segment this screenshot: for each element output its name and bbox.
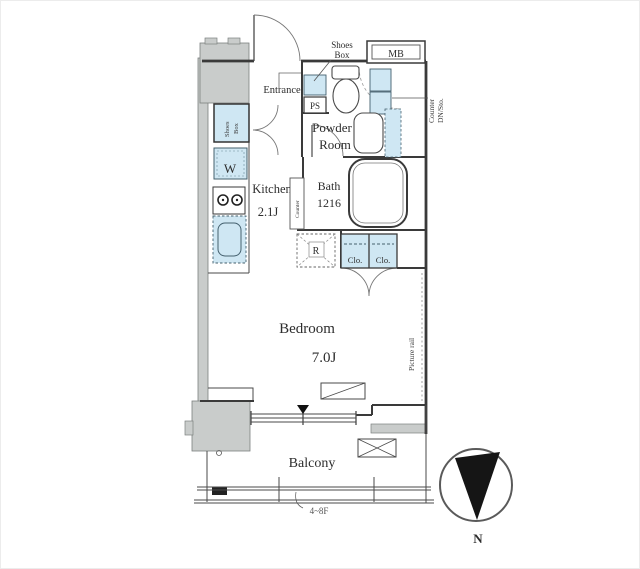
pillar-top-left — [200, 43, 249, 103]
floor-range-label: 4~8F — [310, 506, 329, 516]
closet-right-label: Clo. — [376, 255, 390, 265]
bedroom-size-label: 7.0J — [312, 350, 337, 366]
refrigerator-space: R — [297, 234, 335, 267]
washing-machine: W — [214, 148, 247, 179]
closet-left-label: Clo. — [348, 255, 362, 265]
ps-label: PS — [310, 101, 320, 111]
closet-double-doors — [341, 268, 397, 296]
balcony-label: Balcony — [289, 456, 336, 471]
toilet-tank — [332, 66, 359, 79]
pillar-tab — [205, 38, 217, 44]
toilet-bowl — [333, 79, 359, 113]
kitchen-size-label: 2.1J — [258, 205, 279, 219]
shoes-box-callout-line1: Shoes — [331, 40, 353, 50]
pillar-tab — [185, 421, 193, 435]
entrance-door — [254, 15, 300, 61]
powder-room-label-line2: Room — [319, 137, 351, 152]
mb-label: MB — [388, 49, 404, 60]
sliding-window — [251, 405, 356, 425]
compass: N — [440, 449, 512, 546]
pillar-tab — [228, 38, 240, 44]
balcony-railing-lines — [194, 487, 434, 503]
picture-rail-label: Picture rail — [407, 338, 416, 371]
cabinet-label-line2: Box — [233, 122, 240, 134]
bath-label: Bath — [318, 179, 341, 193]
washer-label: W — [224, 161, 237, 176]
pipe-space: PS — [304, 97, 326, 113]
bathroom: Counter Bath 1216 — [290, 159, 407, 229]
closets: Clo. Clo. — [341, 234, 397, 268]
door-swing-arc — [254, 15, 300, 61]
cabinet-box — [214, 104, 249, 142]
compass-north-label: N — [473, 531, 483, 546]
balcony-wall-band — [371, 424, 426, 433]
kitchen-folding-door — [253, 105, 278, 155]
kitchen-tall-cabinet: Shoes Box — [214, 104, 249, 142]
kitchen-label: Kitchen — [252, 182, 292, 196]
floor-plan-canvas: MB PS Shoes Box Counter DN/Sto. Powder R… — [0, 0, 640, 569]
burner-dot — [222, 199, 224, 201]
shoes-box-callout-line2: Box — [334, 50, 350, 60]
cabinet-label-line1: Shoes — [224, 121, 231, 137]
stove-fixture — [213, 187, 245, 214]
fridge-label: R — [313, 246, 320, 257]
counter-dn-label-line1: Counter — [427, 98, 436, 123]
pillar-bottom-left — [192, 401, 250, 451]
toilet-fixture — [332, 66, 359, 113]
bathtub-outer — [349, 159, 407, 227]
balcony-black-block — [212, 487, 227, 495]
counter-box-upper — [370, 69, 391, 91]
washbasin-fixture — [354, 113, 383, 153]
railing-posts — [279, 477, 374, 502]
bedroom-label: Bedroom — [279, 321, 335, 337]
meter-box: MB — [367, 41, 425, 63]
powder-room-label-line1: Powder — [312, 120, 352, 135]
left-wall-strip — [198, 58, 208, 403]
window-marker-triangle — [297, 405, 309, 414]
vanity-counter-dashed — [385, 109, 401, 157]
door-swing-arc — [341, 268, 397, 296]
entrance-label: Entrance — [263, 85, 301, 96]
floor-plan-drawing: MB PS Shoes Box Counter DN/Sto. Powder R… — [1, 1, 640, 569]
burner-dot — [236, 199, 238, 201]
shoes-box-fixture — [304, 75, 326, 95]
counter-dn-sto: Counter DN/Sto. — [370, 69, 445, 123]
kitchen-sink — [213, 216, 246, 263]
desk-counter — [321, 383, 365, 399]
bath-counter-label: Counter — [295, 200, 301, 218]
door-swing-arc — [253, 105, 278, 155]
counter-dn-label-line2: DN/Sto. — [436, 98, 445, 123]
bath-size-label: 1216 — [317, 196, 341, 210]
